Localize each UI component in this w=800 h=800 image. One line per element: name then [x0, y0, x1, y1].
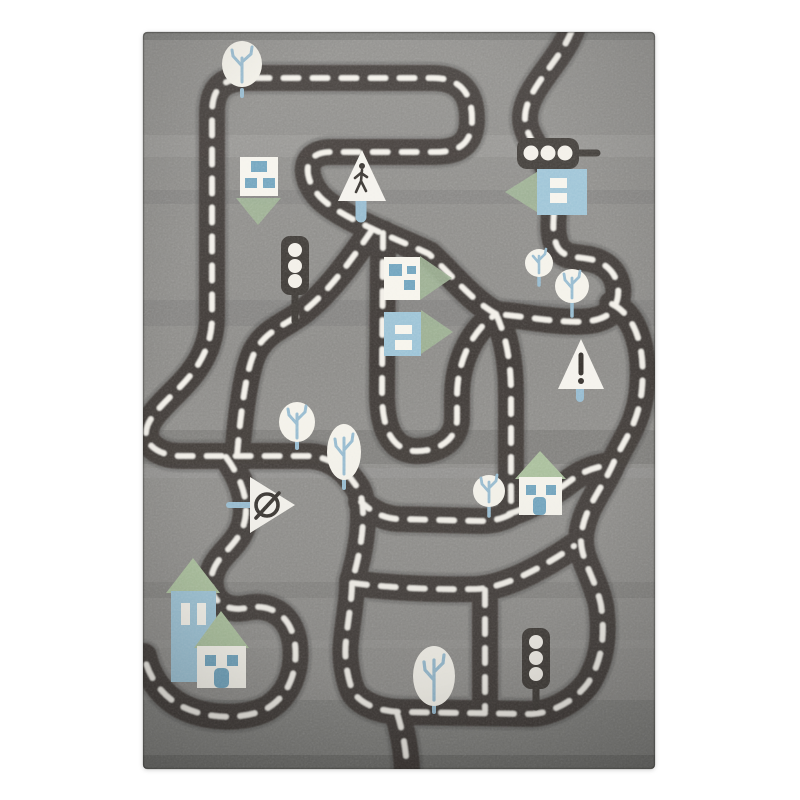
rug [143, 30, 655, 769]
rug-vignette [143, 32, 655, 769]
rug-photo-canvas [0, 0, 800, 800]
product-photo [0, 0, 800, 800]
